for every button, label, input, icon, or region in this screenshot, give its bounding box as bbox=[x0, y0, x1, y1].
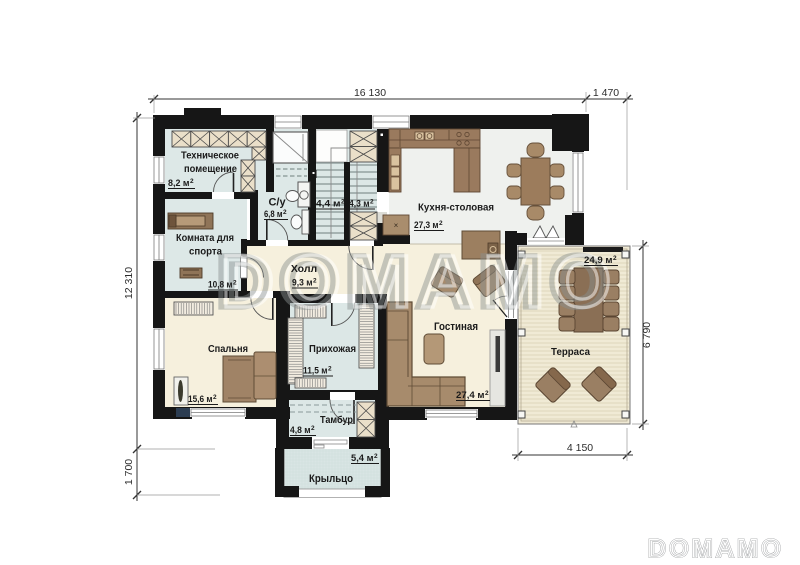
svg-text:Кухня-столовая: Кухня-столовая bbox=[418, 202, 494, 214]
svg-text:Техническое: Техническое bbox=[181, 151, 239, 162]
svg-text:27,4 м: 27,4 м bbox=[456, 390, 485, 401]
svg-text:2: 2 bbox=[233, 280, 237, 287]
svg-text:1 470: 1 470 bbox=[593, 87, 619, 99]
svg-text:Гостиная: Гостиная bbox=[434, 321, 478, 333]
svg-text:2: 2 bbox=[341, 199, 345, 206]
svg-text:Тамбур: Тамбур bbox=[320, 414, 353, 426]
svg-text:Комната для: Комната для bbox=[176, 233, 234, 244]
svg-text:2: 2 bbox=[311, 425, 315, 432]
svg-text:10,8 м: 10,8 м bbox=[208, 280, 233, 291]
svg-text:4 150: 4 150 bbox=[567, 442, 593, 454]
svg-text:2: 2 bbox=[313, 278, 317, 285]
svg-text:15,6 м: 15,6 м bbox=[188, 394, 213, 405]
svg-text:1 700: 1 700 bbox=[123, 459, 135, 485]
svg-text:4,4 м: 4,4 м bbox=[316, 199, 341, 210]
svg-text:DOMAMO: DOMAMO bbox=[221, 240, 620, 323]
svg-text:2: 2 bbox=[283, 209, 287, 216]
svg-text:Крыльцо: Крыльцо bbox=[309, 473, 353, 485]
svg-text:2: 2 bbox=[439, 220, 443, 227]
svg-text:5,4 м: 5,4 м bbox=[351, 453, 374, 464]
svg-text:спорта: спорта bbox=[189, 247, 222, 258]
svg-text:24,9 м: 24,9 м bbox=[584, 255, 613, 266]
svg-text:Терраса: Терраса bbox=[551, 346, 590, 358]
svg-text:2: 2 bbox=[370, 199, 374, 206]
svg-text:2: 2 bbox=[374, 453, 378, 460]
svg-text:6,8 м: 6,8 м bbox=[264, 209, 283, 220]
svg-text:×: × bbox=[394, 221, 399, 230]
svg-text:DOMAMO: DOMAMO bbox=[648, 535, 784, 563]
svg-text:16 130: 16 130 bbox=[354, 87, 386, 99]
svg-text:Спальня: Спальня bbox=[208, 343, 248, 355]
svg-text:4,3 м: 4,3 м bbox=[349, 199, 370, 210]
svg-text:4,8 м: 4,8 м bbox=[290, 425, 311, 436]
svg-text:9,3 м: 9,3 м bbox=[292, 278, 313, 289]
svg-text:6 790: 6 790 bbox=[641, 322, 653, 348]
svg-text:С/у: С/у bbox=[268, 197, 286, 209]
svg-text:2: 2 bbox=[485, 390, 489, 397]
svg-text:помещение: помещение bbox=[184, 164, 237, 175]
svg-text:12 310: 12 310 bbox=[123, 267, 135, 299]
svg-text:11,5 м: 11,5 м bbox=[303, 366, 328, 377]
svg-text:Прихожая: Прихожая bbox=[309, 343, 356, 355]
svg-text:27,3 м: 27,3 м bbox=[414, 220, 439, 231]
svg-text:2: 2 bbox=[613, 255, 617, 262]
svg-text:Холл: Холл bbox=[291, 263, 317, 275]
svg-text:2: 2 bbox=[213, 394, 217, 401]
svg-text:8,2 м: 8,2 м bbox=[168, 178, 190, 189]
svg-text:2: 2 bbox=[190, 178, 194, 185]
svg-text:2: 2 bbox=[328, 366, 332, 373]
